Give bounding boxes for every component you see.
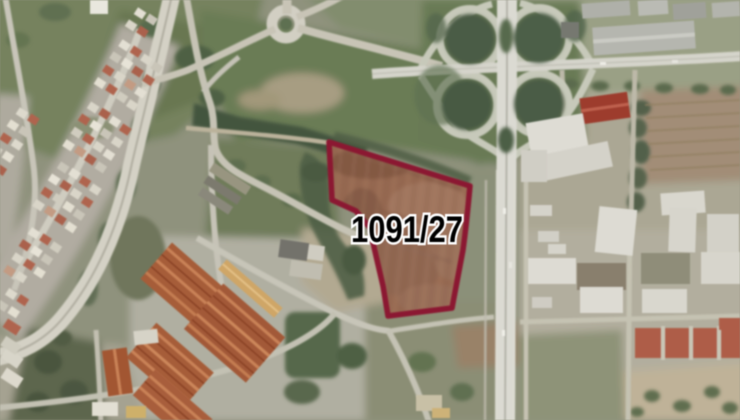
svg-text:1091/27: 1091/27 — [351, 209, 463, 250]
